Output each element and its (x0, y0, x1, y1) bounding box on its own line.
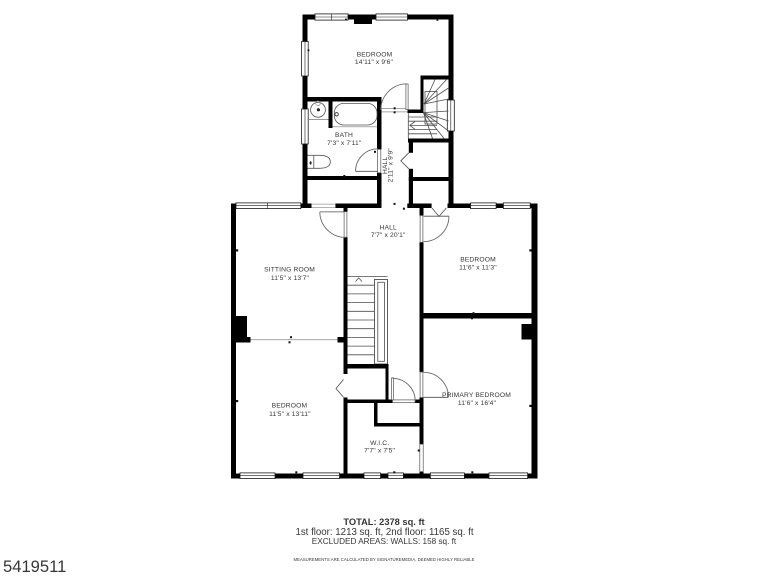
svg-text:BATH: BATH (335, 132, 353, 139)
svg-text:MEASUREMENTS ARE CALCULATED BY: MEASUREMENTS ARE CALCULATED BY SIGNATURE… (293, 557, 474, 562)
svg-text:11'6" x 11'3": 11'6" x 11'3" (459, 264, 497, 271)
svg-text:W.I.C.: W.I.C. (370, 440, 389, 447)
svg-text:HALL: HALL (380, 225, 397, 232)
svg-text:PRIMARY BEDROOM: PRIMARY BEDROOM (442, 392, 511, 399)
svg-text:BEDROOM: BEDROOM (460, 257, 496, 264)
svg-text:11'6" x 16'4": 11'6" x 16'4" (458, 400, 497, 407)
svg-text:7'7" x 7'5": 7'7" x 7'5" (364, 447, 395, 454)
svg-text:EXCLUDED AREAS: WALLS: 158 sq.: EXCLUDED AREAS: WALLS: 158 sq. ft (312, 537, 457, 546)
svg-text:SITTING ROOM: SITTING ROOM (264, 267, 315, 274)
svg-text:14'11" x 9'6": 14'11" x 9'6" (355, 59, 394, 66)
svg-text:7'7" x 20'1": 7'7" x 20'1" (371, 232, 406, 239)
svg-text:TOTAL: 2378 sq. ft: TOTAL: 2378 sq. ft (343, 517, 424, 527)
svg-text:2'11" x 9'9": 2'11" x 9'9" (388, 148, 395, 183)
svg-text:BEDROOM: BEDROOM (272, 403, 308, 410)
svg-text:BEDROOM: BEDROOM (357, 52, 393, 59)
svg-text:5419511: 5419511 (3, 557, 66, 576)
svg-text:11'5" x 13'11": 11'5" x 13'11" (269, 411, 311, 418)
svg-text:11'5" x 13'7": 11'5" x 13'7" (271, 275, 310, 282)
svg-text:7'3" x 7'11": 7'3" x 7'11" (327, 140, 362, 147)
